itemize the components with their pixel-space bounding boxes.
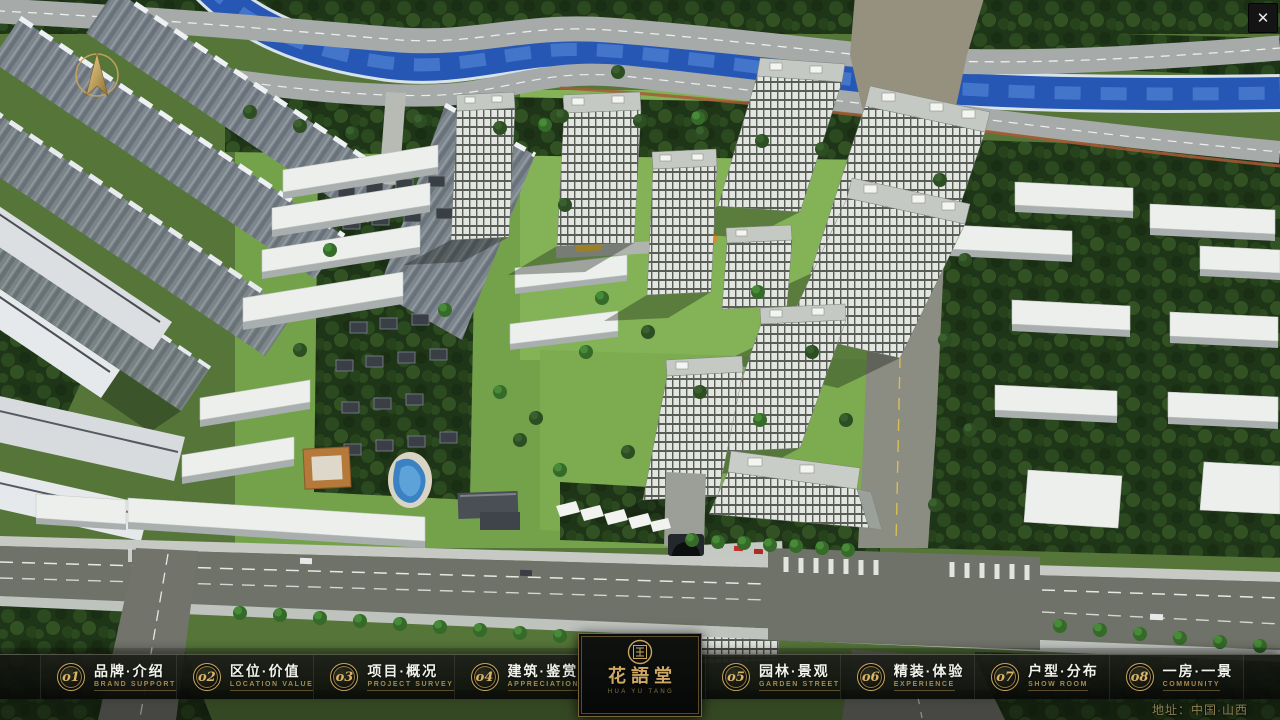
nav-item-subtitle: EXPERIENCE <box>894 680 955 692</box>
item-number: o2 <box>198 670 216 685</box>
nav-item-subtitle: SHOW ROOM <box>1028 680 1088 692</box>
aerial-site-rendering <box>0 0 1280 720</box>
nav-item-title: 户型·分布 <box>1028 663 1099 679</box>
item-number: o4 <box>476 670 494 685</box>
item-number-badge: o7 <box>991 663 1019 691</box>
item-number: o7 <box>996 670 1014 685</box>
nav-item-room-view[interactable]: o8 一房·一景COMMUNITY <box>1110 655 1244 699</box>
nav-item-subtitle: LOCATION VALUE <box>230 680 314 692</box>
nav-item-project[interactable]: o3 项目·概况PROJECT SURVEY <box>314 655 454 699</box>
round-seal-icon <box>627 639 653 665</box>
brand-name: 花語堂 <box>603 666 677 688</box>
item-number-badge: o2 <box>193 663 221 691</box>
item-number-badge: o5 <box>722 663 750 691</box>
nav-item-subtitle: GARDEN STREET <box>759 680 840 692</box>
nav-group-right: o5 园林·景观GARDEN STREET o6 精装·体验EXPERIENCE… <box>705 655 1244 699</box>
nav-item-title: 品牌·介绍 <box>94 663 165 679</box>
nav-item-title: 项目·概况 <box>367 663 438 679</box>
nav-item-title: 精装·体验 <box>894 663 965 679</box>
item-number-badge: o1 <box>57 663 85 691</box>
address-text: 地址：中国·山西 <box>1152 701 1248 718</box>
nav-item-subtitle: COMMUNITY <box>1163 680 1221 692</box>
item-number: o3 <box>336 670 354 685</box>
item-number: o8 <box>1131 670 1149 685</box>
nav-item-subtitle: APPRECIATION <box>508 680 580 692</box>
brand-caption: HUA YU TANG <box>606 689 674 695</box>
item-number-badge: o8 <box>1126 663 1154 691</box>
nav-item-brand[interactable]: o1 品牌·介绍BRAND SUPPORT <box>41 655 177 699</box>
item-number: o5 <box>727 670 745 685</box>
item-number-badge: o6 <box>857 663 885 691</box>
nav-item-subtitle: PROJECT SURVEY <box>367 680 453 692</box>
nav-item-interior[interactable]: o6 精装·体验EXPERIENCE <box>841 655 975 699</box>
nav-item-floorplan[interactable]: o7 户型·分布SHOW ROOM <box>975 655 1109 699</box>
item-number: o6 <box>862 670 880 685</box>
brand-plaque[interactable]: 花語堂 HUA YU TANG <box>578 633 702 717</box>
item-number-badge: o3 <box>330 663 358 691</box>
nav-item-title: 区位·价值 <box>230 663 301 679</box>
nav-item-title: 建筑·鉴赏 <box>508 663 579 679</box>
nav-item-landscape[interactable]: o5 园林·景观GARDEN STREET <box>706 655 841 699</box>
nav-item-architecture[interactable]: o4 建筑·鉴赏APPRECIATION <box>455 655 581 699</box>
close-icon: ✕ <box>1257 11 1270 26</box>
nav-item-subtitle: BRAND SUPPORT <box>94 680 176 692</box>
nav-item-title: 园林·景观 <box>759 663 830 679</box>
close-button[interactable]: ✕ <box>1248 3 1278 33</box>
nav-item-location[interactable]: o2 区位·价值LOCATION VALUE <box>177 655 315 699</box>
item-number: o1 <box>62 670 80 685</box>
nav-group-left: o1 品牌·介绍BRAND SUPPORT o2 区位·价值LOCATION V… <box>40 655 577 699</box>
item-number-badge: o4 <box>471 663 499 691</box>
presentation-window: ✕ o1 品牌·介绍BRAND SUPPORT o2 区位·价值LOCATION… <box>0 0 1280 720</box>
nav-item-title: 一房·一景 <box>1163 663 1234 679</box>
